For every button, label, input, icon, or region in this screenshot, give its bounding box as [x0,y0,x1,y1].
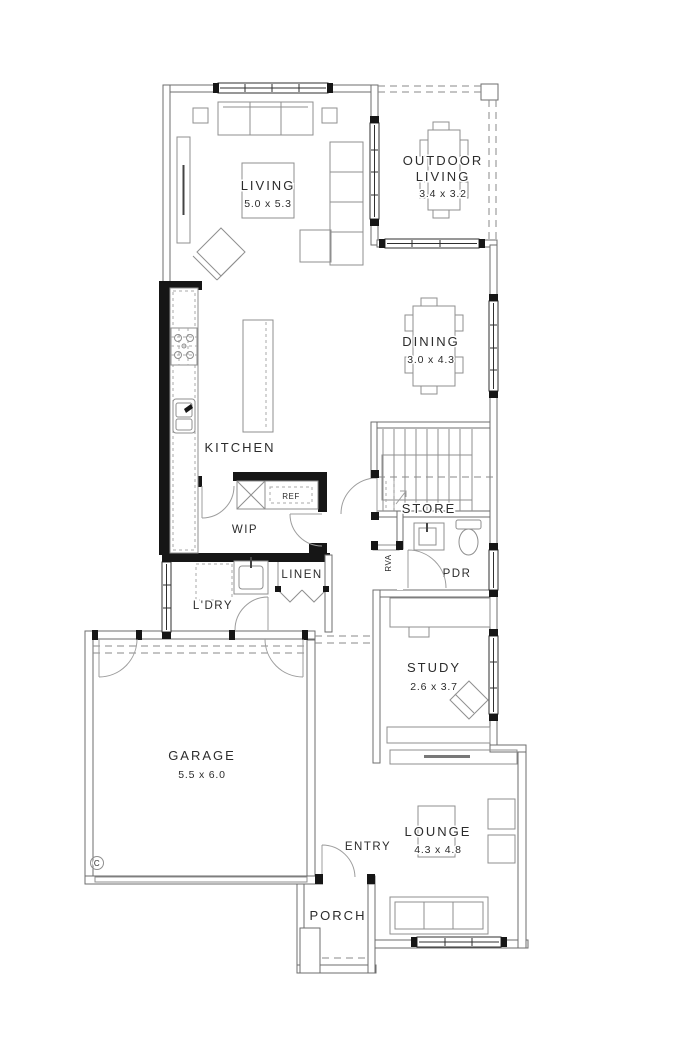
desk-chair [409,627,429,637]
kitchen: KITCHEN [170,288,276,553]
opening-stairs-door [371,478,377,514]
living-dimensions: 5.0 x 5.3 [244,198,291,210]
lounge-sofa-seats [395,902,483,929]
study-label: STUDY [407,660,461,675]
floor-plan-page: LIVING 5.0 x 5.3 OUTDOOR LIVING 3.4 x 3.… [0,0,700,1045]
garage-label: GARAGE [168,748,236,763]
garage-bulkhead [93,646,307,653]
pdr-door [408,550,446,588]
lounge-sofa [390,897,488,934]
column-marker: C [94,859,100,868]
washing-machine-space [196,564,232,600]
alfresco-roof-edge-top [378,86,481,92]
opening-pdr-door [397,549,403,590]
garage-side-door [99,639,137,677]
sofa-chaise [330,142,363,265]
wall-linen-right [325,555,332,632]
alfresco-roof-edge-right [489,100,496,240]
entry-label: ENTRY [345,841,391,853]
powder-room: PDR RVA [371,520,481,580]
wall-garage-right [307,640,315,876]
wall-stairs-top [377,422,490,428]
armchair-2 [488,835,515,863]
opening-garage-laundry [235,632,303,638]
porch-label: PORCH [310,908,367,923]
door-swings [99,470,446,884]
fridge-label: REF [282,492,300,501]
wall-wip-unit-right [318,481,327,512]
stair-risers [383,429,472,511]
rva-label: RVA [384,554,393,571]
chaise-cushion-lines [330,172,363,232]
lounge-dimensions: 4.3 x 4.8 [414,844,461,856]
wip-hall-door [290,514,322,546]
dining-chair-right-2 [455,357,463,373]
wall-porch-right [368,884,375,973]
rug-diamond [197,228,245,276]
walk-in-pantry: REF WIP [232,481,318,536]
porch-pillar [300,928,320,973]
alfresco-post [481,84,498,100]
garage-internal-door [265,639,303,677]
dining-chair-right-1 [455,315,463,331]
toilet-cistern [456,520,481,529]
sofa-corner-seat [300,230,331,262]
entry-bulkhead [315,636,371,643]
outdoor-living-label-2: LIVING [416,169,471,184]
island-bench [243,320,273,432]
wall-garage-left [85,631,93,884]
porch: PORCH [300,908,366,973]
study-cabinet [387,727,490,743]
lounge-label: LOUNGE [405,824,472,839]
wall-left-upper [163,85,170,283]
wall-lounge-right [518,752,526,948]
dining-chair-bottom [421,386,437,394]
dining-chair-top [421,298,437,306]
study-dimensions: 2.6 x 3.7 [410,681,457,693]
outdoor-chair-bottom [433,210,449,218]
wall-stairs-left [371,422,377,478]
laundry-door [235,597,268,630]
armchair-1 [488,799,515,829]
dining-label: DINING [402,334,460,349]
wip-label: WIP [232,524,258,536]
garage-dimensions: 5.5 x 6.0 [178,769,225,781]
living-room: LIVING 5.0 x 5.3 [177,102,363,280]
outdoor-living: OUTDOOR LIVING 3.4 x 3.2 [403,122,483,218]
opening-garage-left [97,632,137,638]
pantry-shelves [237,481,318,509]
pdr-label: PDR [443,568,472,580]
outdoor-living-label-1: OUTDOOR [403,153,483,168]
lounge-tv [424,755,470,758]
pantry-shelf-cross [237,481,265,509]
kitchen-label: KITCHEN [204,440,275,455]
lounge-sofa-cushions [424,902,453,929]
toilet-bowl [459,529,478,555]
dining-chair-left-1 [405,315,413,331]
study: STUDY 2.6 x 3.7 [387,598,490,743]
opening-front-door [323,875,367,885]
side-table-left [193,108,208,123]
living-label: LIVING [241,178,296,193]
outdoor-living-dimensions: 3.4 x 3.2 [419,188,466,200]
understair-store-dashed [386,481,394,509]
dining-room: DINING 3.0 x 4.3 [402,298,463,394]
garage-door-panel [95,877,307,882]
wall-pdr-bottom [377,590,490,597]
dining-dimensions: 3.0 x 4.3 [407,354,454,366]
rug-diamond-offset [193,256,241,280]
study-desk [390,598,490,627]
staircase: STORE [378,429,496,516]
laundry: L'DRY LINEN [193,557,329,612]
wall-study-lounge-step [490,745,526,752]
wip-kitchen-door [202,486,234,518]
floor-plan-canvas: LIVING 5.0 x 5.3 OUTDOOR LIVING 3.4 x 3.… [0,0,700,1045]
wall-kitchen-solid [159,281,170,555]
outdoor-chair-top [433,122,449,130]
sofa-cushion-lines [223,102,308,135]
linen-bifold-doors [278,590,326,602]
linen-label: LINEN [281,569,322,581]
study-armchair-line [455,694,474,713]
wall-wip-unit-top [233,472,327,481]
store-label: STORE [402,501,457,516]
wall-study-left [373,590,380,763]
side-table-right [322,108,337,123]
laundry-label: L'DRY [193,600,233,612]
